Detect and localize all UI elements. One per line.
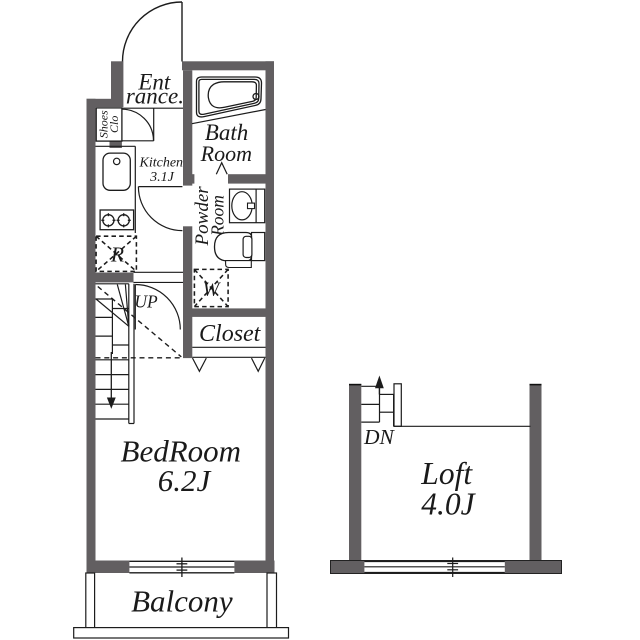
- svg-text:Room: Room: [207, 195, 227, 237]
- svg-text:Kitchen: Kitchen: [139, 156, 184, 171]
- svg-text:Closet: Closet: [199, 321, 262, 347]
- svg-text:Room: Room: [200, 141, 252, 166]
- svg-text:Balcony: Balcony: [131, 584, 233, 619]
- svg-text:6.2J: 6.2J: [158, 463, 212, 498]
- svg-text:4.0J: 4.0J: [421, 487, 476, 522]
- svg-text:DN: DN: [363, 425, 396, 449]
- svg-text:UP: UP: [134, 292, 158, 312]
- svg-text:rance.: rance.: [126, 84, 184, 109]
- svg-text:W: W: [203, 279, 222, 301]
- svg-text:3.1J: 3.1J: [149, 170, 175, 185]
- svg-text:R: R: [110, 243, 124, 267]
- svg-text:Clo: Clo: [107, 116, 121, 133]
